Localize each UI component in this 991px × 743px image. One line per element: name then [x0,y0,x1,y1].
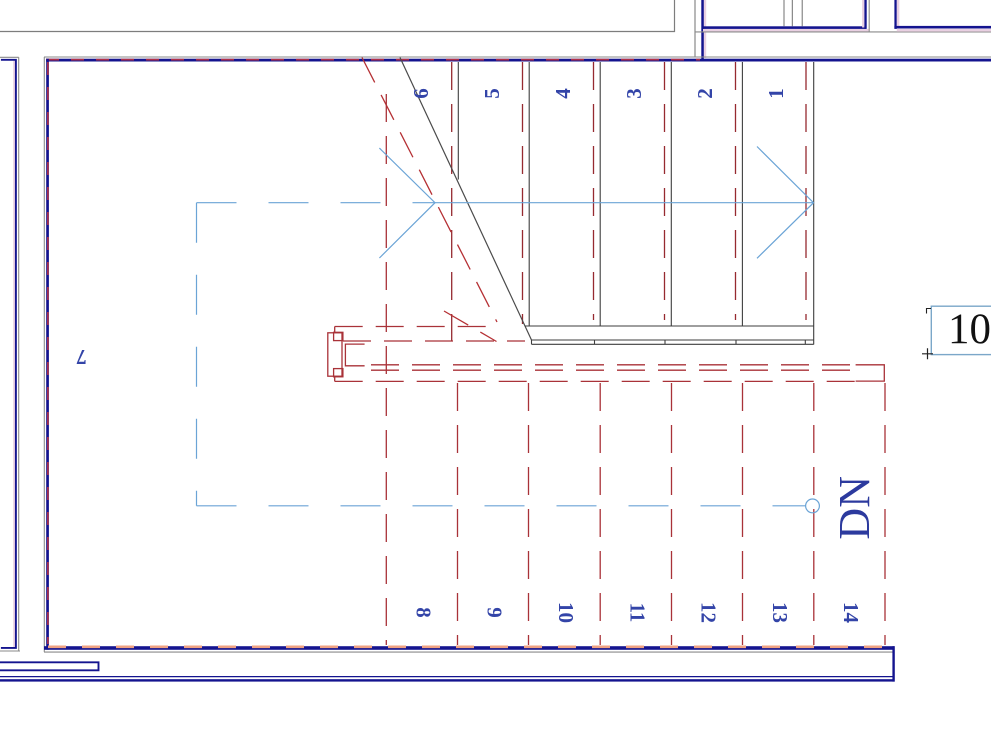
svg-text:DN: DN [830,476,879,540]
svg-text:5: 5 [480,88,504,99]
svg-text:8: 8 [412,607,436,618]
svg-text:3: 3 [622,88,646,99]
svg-text:10: 10 [554,602,578,623]
svg-text:13: 13 [768,602,792,623]
svg-text:4: 4 [551,88,575,99]
svg-text:6: 6 [409,88,433,99]
svg-text:12: 12 [697,602,721,623]
svg-text:9: 9 [483,607,507,618]
svg-text:7: 7 [76,345,87,369]
svg-text:14: 14 [839,602,863,624]
svg-text:1: 1 [764,88,788,99]
svg-text:103: 103 [948,306,991,353]
svg-text:2: 2 [693,88,717,99]
svg-text:11: 11 [626,603,650,623]
